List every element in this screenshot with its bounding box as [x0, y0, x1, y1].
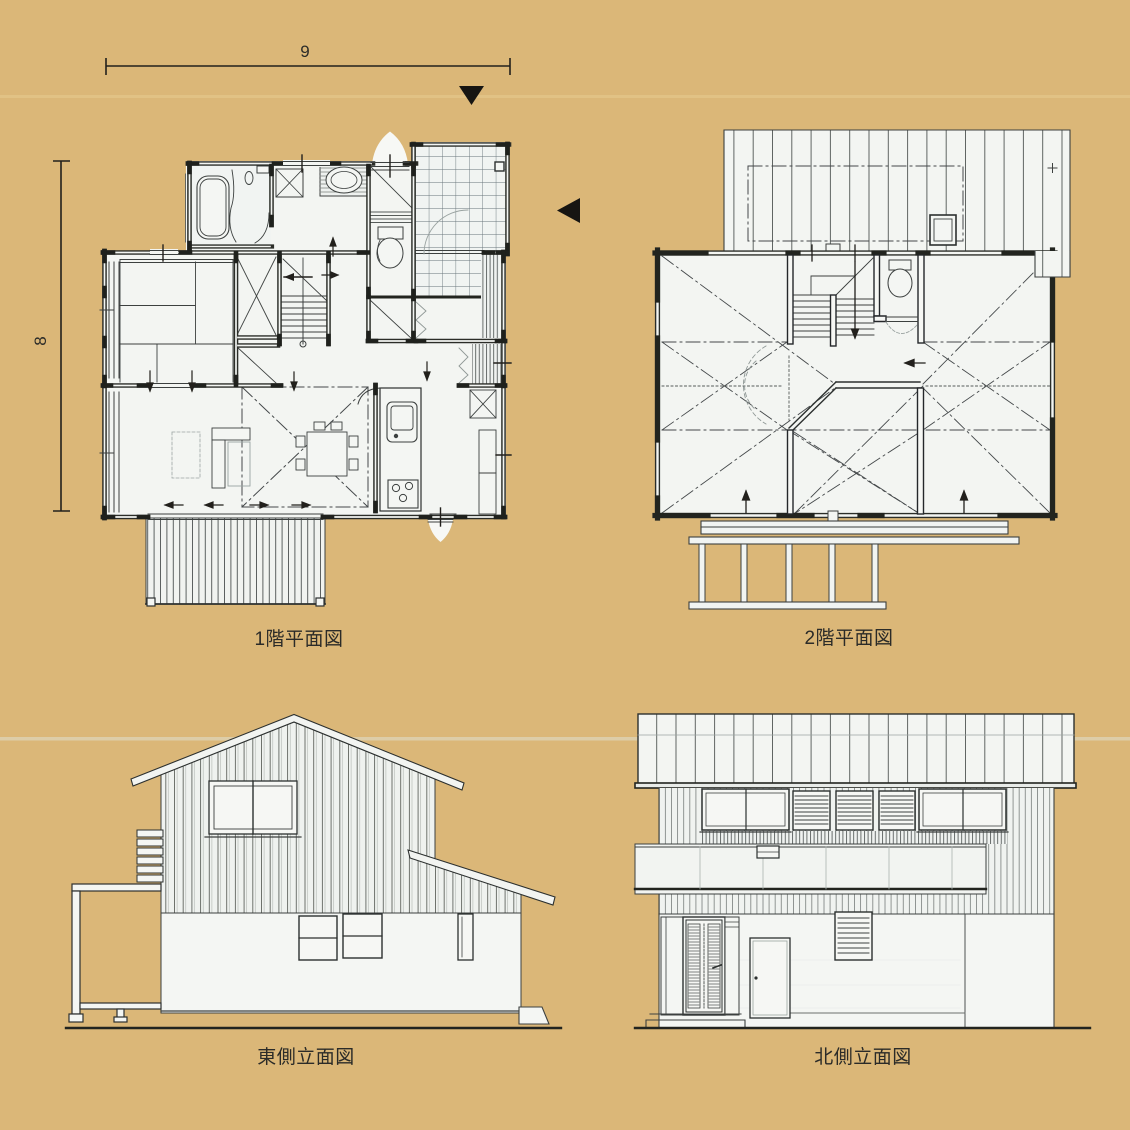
svg-text:1階平面図: 1階平面図	[254, 628, 343, 650]
svg-text:東側立面図: 東側立面図	[257, 1046, 355, 1068]
svg-text:2階平面図: 2階平面図	[804, 627, 893, 649]
svg-text:北側立面図: 北側立面図	[814, 1046, 912, 1068]
svg-text:9: 9	[300, 42, 309, 61]
svg-text:8: 8	[31, 336, 50, 345]
